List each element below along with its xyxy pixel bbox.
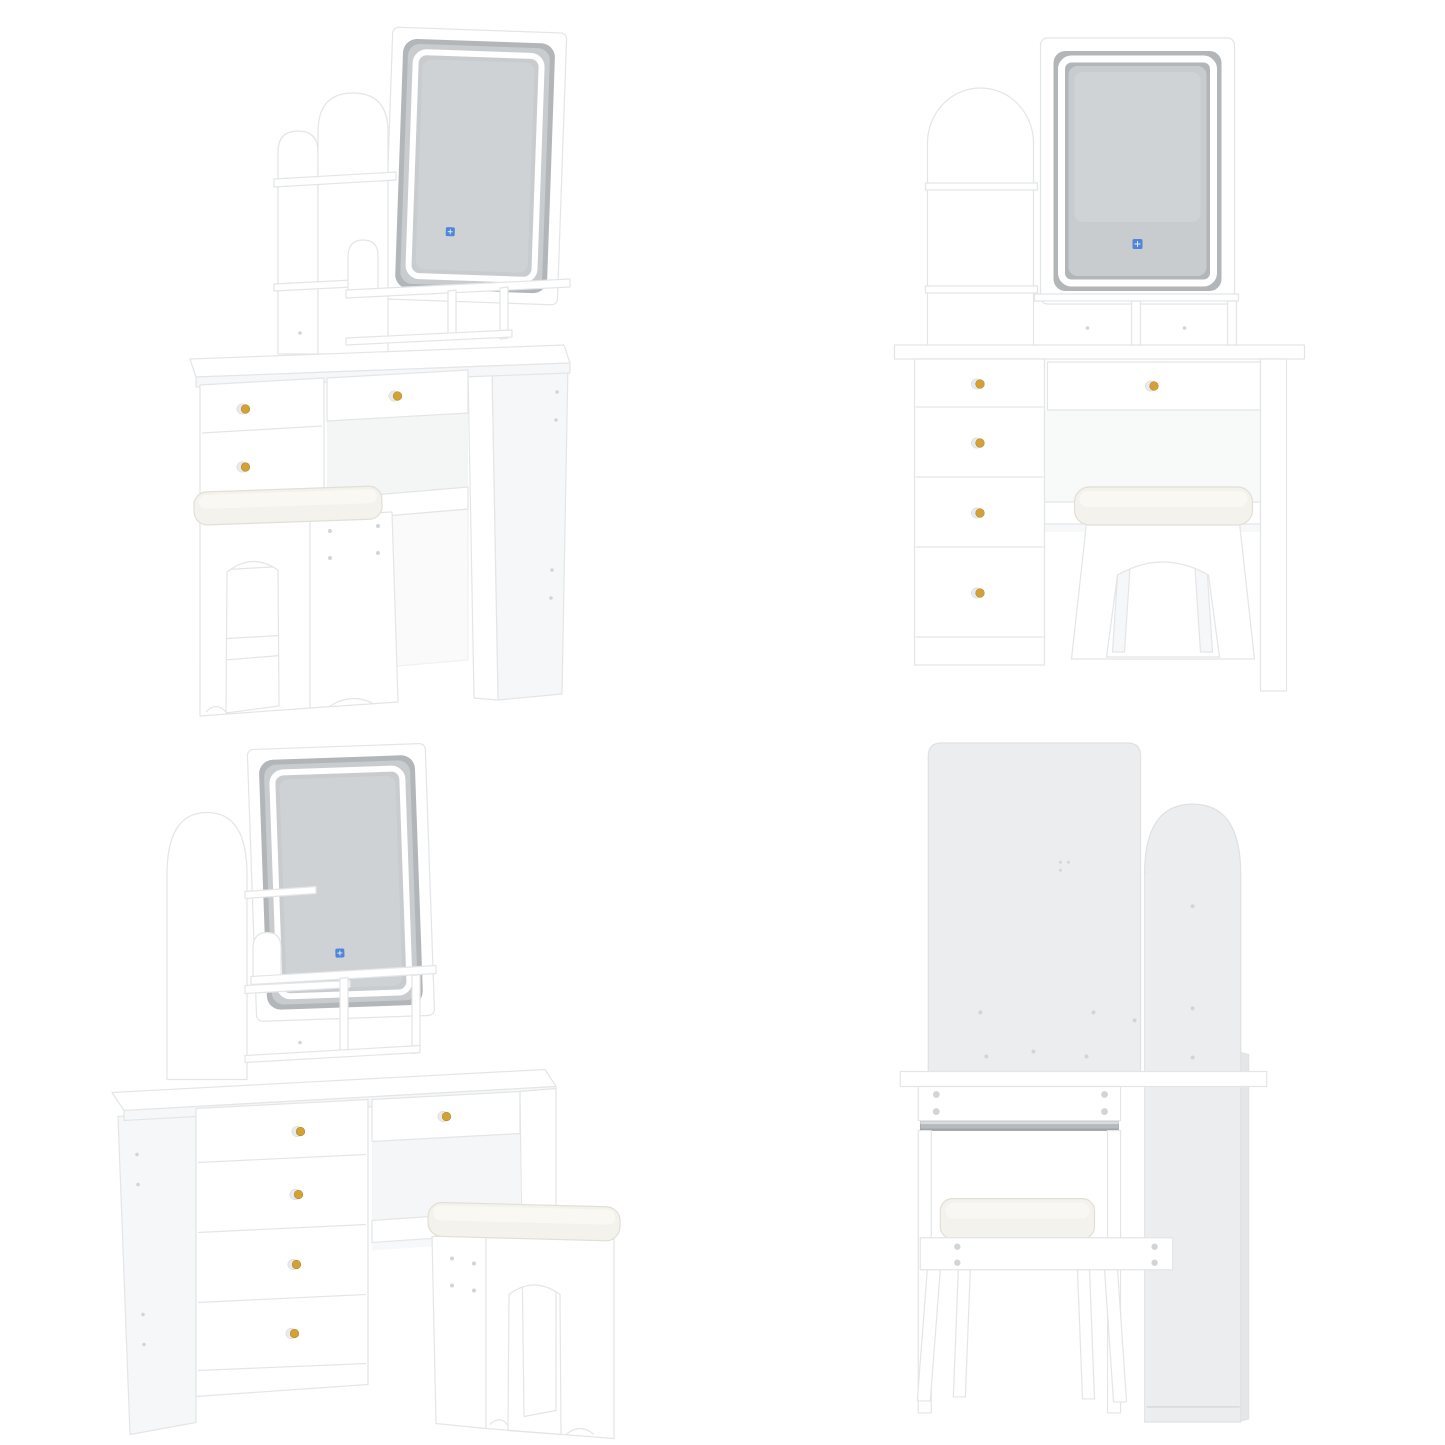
arch-panel	[928, 88, 1034, 353]
drawer-knob	[286, 1328, 299, 1338]
drawer-back-apron	[918, 1087, 1120, 1121]
drawer-knob	[1145, 381, 1158, 391]
touch-sensor-icon	[1133, 239, 1143, 249]
shelf-under-mirror	[1035, 294, 1239, 301]
drawer-knob	[971, 379, 984, 389]
touch-sensor-icon	[335, 948, 344, 957]
arch-panel-tall	[318, 93, 388, 354]
drawer-bank	[196, 1100, 368, 1397]
drawer-knob	[288, 1259, 301, 1269]
shelf-top	[926, 183, 1038, 190]
drawer-knob	[292, 1126, 305, 1136]
stool-cushion	[428, 1202, 621, 1241]
desktop	[895, 345, 1305, 359]
drawer-knob	[389, 391, 402, 401]
stool	[1072, 487, 1255, 659]
drawer-slide-rail	[920, 1122, 1118, 1131]
cubby-divider	[412, 975, 420, 1054]
view-front-illustration	[722, 0, 1445, 722]
view-back-illustration	[722, 722, 1445, 1445]
drawer-knob	[237, 462, 250, 472]
arch-bracket	[348, 240, 378, 296]
stool	[194, 486, 398, 716]
stool-leg	[953, 1270, 970, 1397]
drawer-knob	[290, 1189, 303, 1199]
arch-bracket	[253, 933, 281, 981]
drawer-knob	[971, 588, 984, 598]
drawer-knob	[971, 508, 984, 518]
leg-panel-right	[1261, 359, 1287, 691]
drawer-knob	[237, 404, 250, 414]
drawer-knob	[971, 438, 984, 448]
cubby-divider	[340, 978, 348, 1055]
cabinet-side-edge	[1241, 1052, 1249, 1421]
cubby-divider	[448, 290, 456, 339]
arch-back-column	[1145, 804, 1241, 1422]
stool-face-right	[310, 512, 398, 708]
arch-panel-small	[278, 131, 318, 354]
shelf-low	[245, 1046, 420, 1063]
view-front-left-angle-illustration	[0, 0, 722, 722]
view-front-right-angle-illustration	[0, 722, 722, 1445]
arch-panel	[167, 813, 247, 1080]
desktop-back-edge	[900, 1071, 1267, 1086]
led-mirror	[1041, 38, 1235, 304]
drawer-knob	[438, 1111, 451, 1121]
led-mirror	[383, 27, 566, 305]
stool-leg	[1077, 1270, 1094, 1399]
view-front-left-angle	[0, 0, 722, 722]
stool-face-left	[432, 1234, 486, 1429]
view-front-right-angle	[0, 722, 722, 1445]
touch-sensor-icon	[446, 227, 455, 236]
view-back	[722, 722, 1445, 1445]
mirror-back-panel	[928, 743, 1140, 1071]
stool-back	[917, 1199, 1172, 1402]
hutch-shelf-unit	[926, 88, 1038, 353]
view-front	[722, 0, 1445, 722]
stool-cushion	[194, 486, 383, 526]
side-panel-left	[118, 1109, 196, 1435]
side-panel-right	[492, 364, 568, 700]
stool-front-face	[1072, 523, 1255, 659]
product-image-grid	[0, 0, 1445, 1445]
shelf-middle	[926, 286, 1038, 293]
